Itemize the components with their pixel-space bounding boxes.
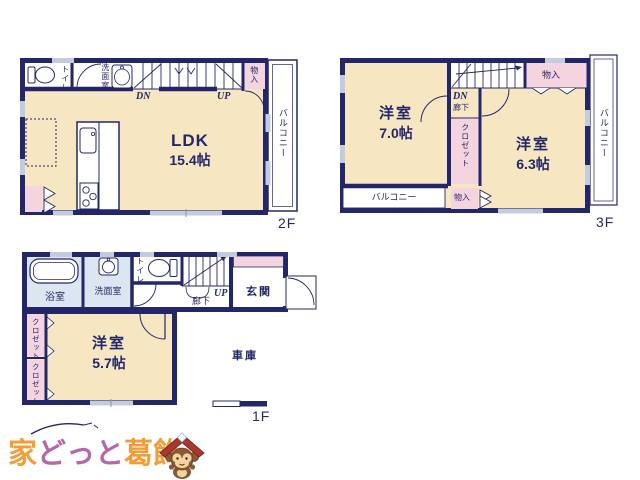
room-label-room-b: 洋室 (488, 137, 578, 154)
room-size-ldk: 15.4帖 (145, 153, 235, 168)
logo-swoosh (26, 418, 126, 438)
storage-top-label: 物入 (542, 71, 560, 81)
kitchen-counter-icon (77, 122, 119, 210)
sink-icon (112, 65, 132, 88)
room-label-balcony-2f: バルコニー (277, 108, 287, 158)
room-label-storage-2f: 物入 (249, 66, 258, 84)
balcony-right-label: バルコニー (598, 108, 608, 158)
room-label-toilet-2f: トイレ (60, 65, 69, 92)
toilet-icon-1f (149, 260, 178, 277)
toilet-icon (28, 67, 55, 83)
room-size-room-b: 6.3帖 (488, 157, 578, 172)
stairs-up-label-1f: UP (214, 288, 227, 299)
stairs-dn-label-2f: DN (136, 91, 150, 102)
closet-upper-label: クロゼット (31, 318, 39, 361)
room-label-ldk: LDK (145, 132, 235, 151)
room-label-washroom-2f: 洗面室 (100, 63, 109, 90)
floor-plan-3f: 洋室 7.0帖 DN 廊下 物入 クロゼット 洋室 6.3帖 物入 バルコニー … (336, 50, 632, 238)
room-size-room-a: 7.0帖 (351, 126, 441, 141)
balcony-bottom-label: バルコニー (349, 193, 439, 203)
sink-icon-1f (99, 258, 118, 275)
mascot-monkey-icon (156, 430, 208, 480)
floor-3f-drawing (336, 50, 632, 238)
floor-plan-2f: トイレ 洗面室 DN UP 物入 バルコニー LDK 15.4帖 2F (20, 56, 320, 236)
garage-label: 車庫 (223, 350, 267, 362)
closet-label-3f: クロゼット (460, 123, 469, 168)
floor-plan-1f: 浴室 洗面室 トイレ 廊下 UP 玄関 クロゼット クロゼット 洋室 5.7帖 … (20, 250, 320, 428)
logo-text-part1: 家 (8, 438, 37, 470)
closet-lower-label: クロゼット (31, 363, 39, 406)
room-label-entrance: 玄関 (237, 286, 281, 298)
hallway-label-3f: 廊下 (453, 104, 469, 113)
floor-label-2f: 2F (278, 216, 296, 231)
logo-text-part2: どっと (37, 438, 124, 470)
entrance-storage (234, 256, 284, 267)
room-label-bathroom: 浴室 (35, 292, 75, 303)
bathtub-icon (30, 259, 78, 283)
floor-label-3f: 3F (596, 215, 614, 230)
hallway-label-1f: 廊下 (192, 297, 210, 307)
floor-label-1f: 1F (252, 409, 270, 424)
floorplan-page: { "colors": { "wall_navy": "#23276a", "r… (0, 0, 640, 480)
room-label-room-a: 洋室 (351, 106, 441, 123)
company-logo: 家どっと葛飾 (6, 416, 221, 480)
stairs-up-label-2f: UP (217, 91, 230, 102)
room-label-room-1f: 洋室 (64, 336, 154, 353)
scale-bar (213, 401, 267, 407)
room-label-toilet-1f: トイレ (135, 257, 144, 284)
storage-bottom-label: 物入 (454, 194, 470, 203)
room-size-room-1f: 5.7帖 (64, 356, 154, 371)
room-label-washroom-1f: 洗面室 (85, 287, 131, 297)
stairs-floor-3f (451, 63, 525, 88)
stairs-dn-label-3f: DN (453, 91, 467, 102)
